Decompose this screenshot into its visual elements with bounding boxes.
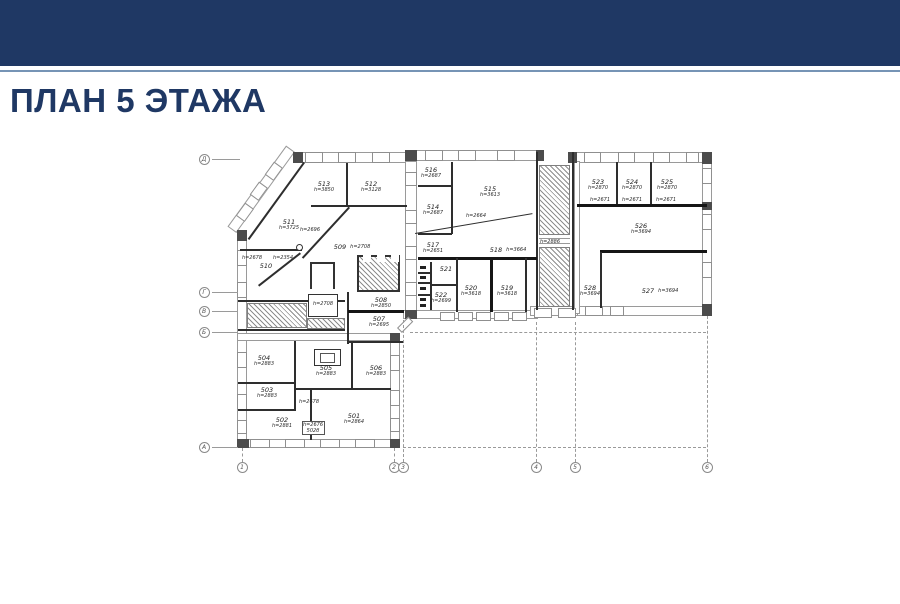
grid-axis-row-Д: Д (199, 154, 210, 165)
annotation: h=2671 (590, 198, 610, 203)
wall-segment (348, 310, 404, 313)
wall-segment (420, 266, 426, 269)
wall-segment (296, 244, 303, 251)
room-label-501: 501h=2864 (344, 413, 364, 425)
annotation: h=2664 (466, 214, 486, 219)
height-annotation: h=2651 (423, 249, 443, 254)
room-number: 518 (490, 246, 502, 254)
wall-segment (372, 152, 390, 163)
floor-plan: 513h=3850512h=3128511h=3725510509h=27085… (0, 0, 900, 604)
annotation: h=2696 (300, 228, 320, 233)
wall-segment (320, 439, 340, 448)
grid-axis-row-Г: Г (199, 287, 210, 298)
room-label-506: 506h=2883 (366, 365, 386, 377)
height-annotation: h=2883 (366, 372, 386, 377)
wall-segment (707, 316, 708, 462)
wall-segment (237, 282, 247, 298)
room-label-514: 514h=2687 (423, 204, 443, 216)
wall-segment (702, 214, 712, 230)
height-annotation: h=2881 (272, 424, 292, 429)
wall-segment (240, 249, 302, 251)
room-label-523: 523h=2870 (588, 179, 608, 191)
room-label-525: 525h=2870 (657, 179, 677, 191)
wall-segment (702, 168, 712, 184)
wall-segment (310, 262, 335, 289)
wall-segment (418, 272, 431, 274)
wall-segment (418, 185, 452, 187)
wall-segment (311, 205, 407, 207)
wall-segment (403, 447, 706, 448)
height-annotation: h=2883 (316, 372, 336, 377)
corridor-hatch (247, 303, 307, 328)
wall-segment (440, 312, 455, 321)
wall-segment (575, 322, 576, 462)
wall-segment (212, 311, 238, 312)
wall-segment (242, 448, 243, 462)
wall-segment (405, 150, 417, 161)
wall-segment (238, 409, 295, 411)
wall-segment (377, 253, 385, 262)
wall-segment (293, 152, 303, 163)
wall-segment (420, 276, 426, 279)
wall-segment (394, 448, 395, 462)
height-annotation: h=2354 (273, 256, 293, 261)
wall-segment (237, 394, 247, 410)
wall-segment (305, 152, 323, 163)
wall-segment (403, 320, 404, 462)
corridor-hatch (307, 318, 345, 329)
annotation: h=2671 (656, 198, 676, 203)
wall-segment (425, 150, 443, 161)
wall-segment (237, 352, 247, 368)
room-label-504: 504h=2883 (254, 355, 274, 367)
wall-segment (616, 162, 618, 206)
room-label-521: 521 (440, 266, 452, 273)
wall-segment (430, 284, 457, 286)
wall-segment (600, 250, 707, 253)
grid-axis-row-В: В (199, 306, 210, 317)
room-label-512: 512h=3128 (361, 181, 381, 193)
wall-segment (410, 332, 706, 333)
annotation: h=2678 (242, 256, 262, 261)
height-annotation: h=2864 (344, 420, 364, 425)
wall-segment (494, 312, 509, 321)
annotation: h=2678 (299, 400, 319, 405)
wall-segment (702, 304, 712, 316)
wall-segment (577, 204, 707, 207)
wall-segment (212, 159, 240, 160)
room-label-522: 522h=2699 (431, 292, 451, 304)
room-label-508: 508h=2850 (371, 297, 391, 309)
wall-segment (536, 152, 538, 310)
room-label-503: 503h=2883 (257, 387, 277, 399)
wall-segment (338, 152, 356, 163)
room-label-505: 505h=2883 (316, 365, 336, 377)
wall-segment (212, 332, 238, 333)
height-annotation: h=2671 (622, 198, 642, 203)
room-label-515: 515h=3613 (480, 186, 500, 198)
wall-segment (237, 439, 249, 448)
height-annotation: h=2664 (466, 214, 486, 219)
height-annotation: h=2687 (421, 174, 441, 179)
wall-segment (418, 294, 431, 296)
room-label-510: 510 (260, 263, 272, 270)
annotation: h=2886 (540, 240, 560, 245)
height-annotation: h=2870 (588, 186, 608, 191)
wall-segment (618, 152, 635, 163)
wall-segment (212, 292, 238, 293)
height-annotation: h=3618 (497, 292, 517, 297)
wall-segment (295, 388, 391, 390)
height-annotation: h=2850 (371, 304, 391, 309)
room-label-518: 518h=3664 (490, 242, 527, 259)
wall-segment (390, 355, 400, 371)
wall-segment (572, 152, 574, 310)
room-label-519: 519h=3618 (497, 285, 517, 297)
height-annotation: h=3613 (480, 193, 500, 198)
room-label-528: 528h=3694 (580, 285, 600, 297)
room-label-513: 513h=3850 (314, 181, 334, 193)
height-annotation: h=2708 (350, 244, 370, 250)
stair-shaft-hatch (539, 247, 570, 307)
room-label-524: 524h=2870 (622, 179, 642, 191)
height-annotation: 502б (307, 429, 320, 434)
wall-segment (347, 292, 349, 344)
annotation: h=2708 (313, 302, 333, 307)
room-label-507: 507h=2695 (369, 316, 389, 328)
wall-segment (536, 322, 537, 462)
height-annotation: h=3618 (461, 292, 481, 297)
wall-segment (285, 439, 305, 448)
wall-segment (238, 382, 295, 384)
wall-segment (346, 163, 348, 207)
wall-segment (390, 390, 400, 406)
wall-segment (237, 230, 247, 241)
wall-segment (237, 420, 247, 434)
wall-segment (405, 172, 417, 186)
wall-segment (320, 353, 335, 363)
height-annotation: h=3664 (506, 247, 526, 253)
height-annotation: h=2678 (242, 256, 262, 261)
wall-segment (490, 258, 493, 312)
wall-segment (600, 252, 602, 308)
wall-segment (390, 418, 400, 432)
grid-axis-col-6: 6 (702, 462, 713, 473)
room-label-520: 520h=3618 (461, 285, 481, 297)
room-number: 510 (260, 263, 272, 270)
height-annotation: h=3694 (580, 292, 600, 297)
height-annotation: h=2696 (300, 228, 320, 233)
height-annotation: h=2687 (423, 211, 443, 216)
height-annotation: h=2883 (254, 362, 274, 367)
wall-segment (391, 253, 399, 262)
height-annotation: h=2671 (656, 198, 676, 203)
wall-segment (653, 152, 670, 163)
wall-segment (397, 317, 413, 333)
wall-segment (584, 152, 601, 163)
wall-segment (420, 304, 426, 307)
wall-segment (610, 306, 624, 316)
wall-segment (355, 439, 375, 448)
wall-segment (351, 341, 353, 389)
grid-axis-col-4: 4 (531, 462, 542, 473)
height-annotation: h=2883 (257, 394, 277, 399)
wall-segment (451, 162, 453, 234)
wall-segment (650, 162, 652, 206)
annotation: h=2354 (273, 256, 293, 261)
height-annotation: h=2886 (540, 240, 560, 245)
wall-segment (702, 152, 712, 164)
room-label-511: 511h=3725 (279, 219, 299, 231)
wall-segment (458, 312, 473, 321)
page: { "header": { "band_color": "#1f3864", "… (0, 0, 900, 604)
height-annotation: h=2695 (369, 323, 389, 328)
room-label-516: 516h=2687 (421, 167, 441, 179)
grid-axis-col-1: 1 (237, 462, 248, 473)
height-annotation: h=2678 (299, 400, 319, 405)
height-annotation: h=2699 (431, 299, 451, 304)
height-annotation: h=3725 (279, 226, 299, 231)
height-annotation: h=2671 (590, 198, 610, 203)
height-annotation: h=3694 (631, 230, 651, 235)
wall-segment (294, 341, 296, 411)
height-annotation: h=3128 (361, 188, 381, 193)
wall-segment (525, 258, 527, 312)
wall-segment (420, 298, 426, 301)
room-label-527: 527h=3694 (642, 283, 679, 300)
height-annotation: h=3850 (314, 188, 334, 193)
room-label-517: 517h=2651 (423, 242, 443, 254)
wall-segment (418, 233, 452, 235)
wall-segment (238, 329, 345, 331)
wall-segment (420, 287, 426, 290)
room-number: 521 (440, 266, 452, 273)
wall-segment (250, 439, 270, 448)
room-number: 509 (334, 243, 346, 251)
room-label-502: 502h=2881 (272, 417, 292, 429)
wall-segment (237, 333, 398, 341)
wall-segment (702, 262, 712, 278)
stair-shaft-hatch (539, 165, 570, 235)
room-label-509: 509h=2708 (334, 239, 371, 256)
wall-segment (512, 312, 527, 321)
wall-segment (686, 152, 699, 163)
wall-segment (497, 150, 515, 161)
height-annotation: h=2708 (313, 302, 333, 307)
wall-segment (390, 439, 400, 448)
annotation: 502б (307, 429, 320, 434)
grid-axis-col-5: 5 (570, 462, 581, 473)
wall-segment (405, 246, 417, 260)
height-annotation: h=2870 (622, 186, 642, 191)
grid-axis-row-Б: Б (199, 327, 210, 338)
wall-segment (212, 447, 238, 448)
wall-segment (405, 210, 417, 224)
room-label-526: 526h=3694 (631, 223, 651, 235)
height-annotation: h=3694 (658, 288, 678, 294)
grid-axis-row-А: А (199, 442, 210, 453)
wall-segment (476, 312, 491, 321)
room-number: 527 (642, 287, 654, 295)
height-annotation: h=2870 (657, 186, 677, 191)
wall-segment (458, 150, 476, 161)
wall-segment (348, 341, 404, 343)
grid-axis-col-3: 3 (398, 462, 409, 473)
annotation: h=2671 (622, 198, 642, 203)
wall-segment (405, 282, 417, 296)
